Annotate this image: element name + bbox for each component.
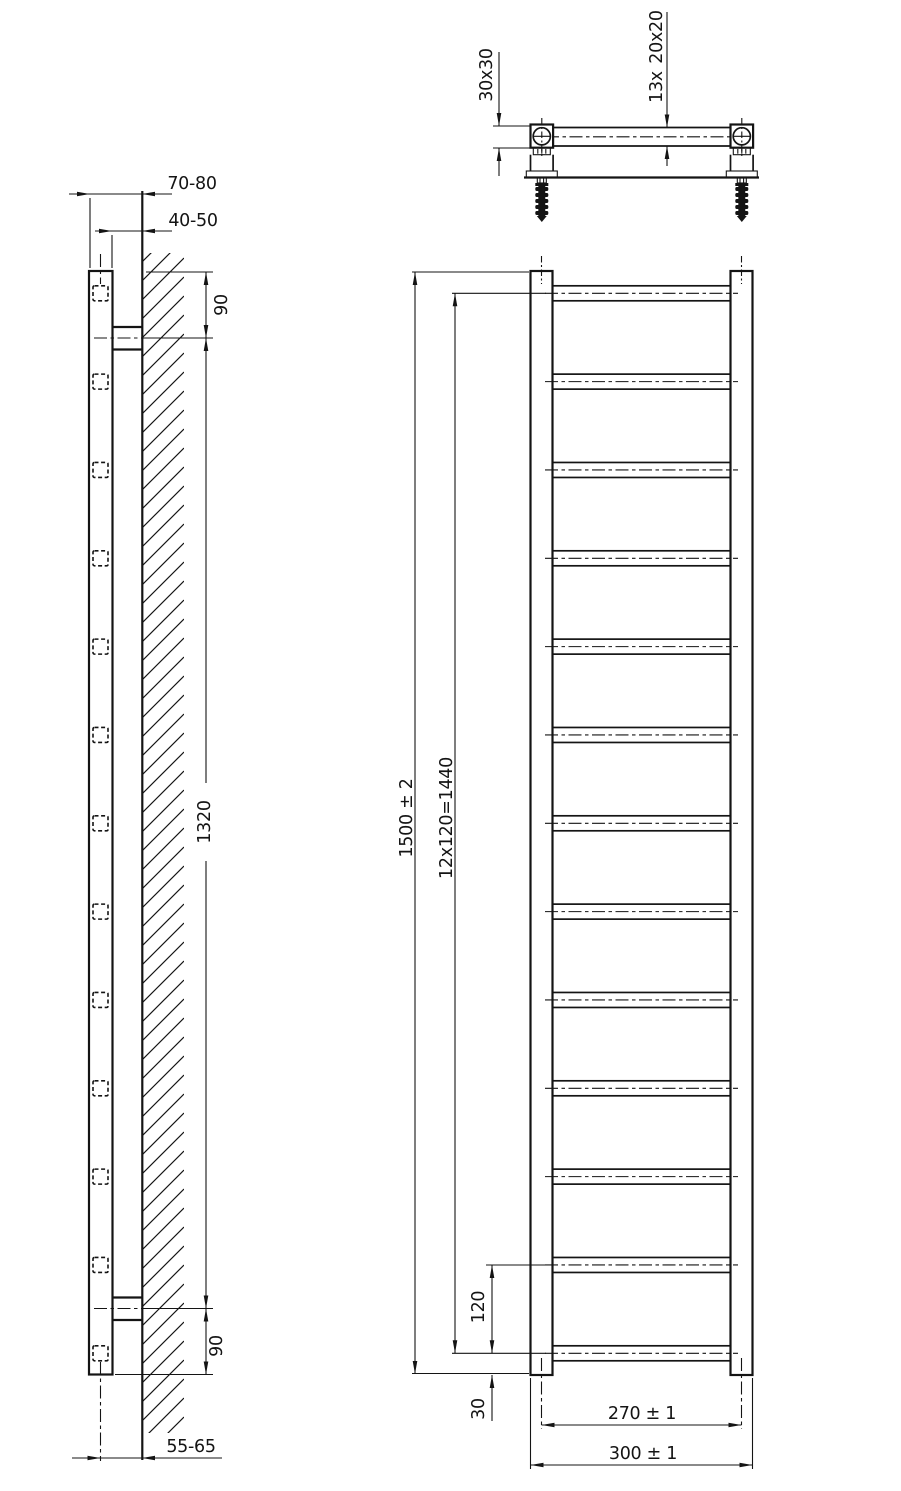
dim-label-pitch: 120 [469,1291,489,1324]
dim-label-axis-width: 270 ± 1 [608,1404,676,1424]
top-view [524,118,759,222]
side-view [89,191,153,1461]
dim-label-pitch-total: 12x120=1440 [437,757,457,879]
dim-label-rung-count: 13x [647,71,667,103]
dim-label-height: 1500 ± 2 [397,778,417,857]
dim-label-width: 300 ± 1 [609,1444,677,1464]
dim-label-bracket-span: 1320 [195,800,215,843]
dim-label-bottom-bracket: 90 [207,1335,227,1357]
dim-label-wall-to-front: 70-80 [167,174,216,194]
dim-label-rung-profile: 20x20 [647,10,667,63]
dim-label-profile: 30x30 [477,48,497,101]
dim-label-wall-to-axis: 55-65 [166,1437,215,1457]
dim-label-bottom: 30 [469,1398,489,1420]
mounting-bracket [726,118,757,178]
radiator-technical-drawing: 70-80 40-50 90 1320 90 55-65 30x30 20x20… [0,0,901,1491]
technical-drawing-sheet: 70-80 40-50 90 1320 90 55-65 30x30 20x20… [0,0,901,1491]
mounting-bracket [526,118,557,178]
dim-label-top-bracket: 90 [212,294,232,316]
wall-anchor [535,178,548,223]
dim-label-wall-gap: 40-50 [168,211,217,231]
wall-anchor [735,178,748,223]
front-view [531,256,753,1429]
wall-hatching [142,220,184,1478]
